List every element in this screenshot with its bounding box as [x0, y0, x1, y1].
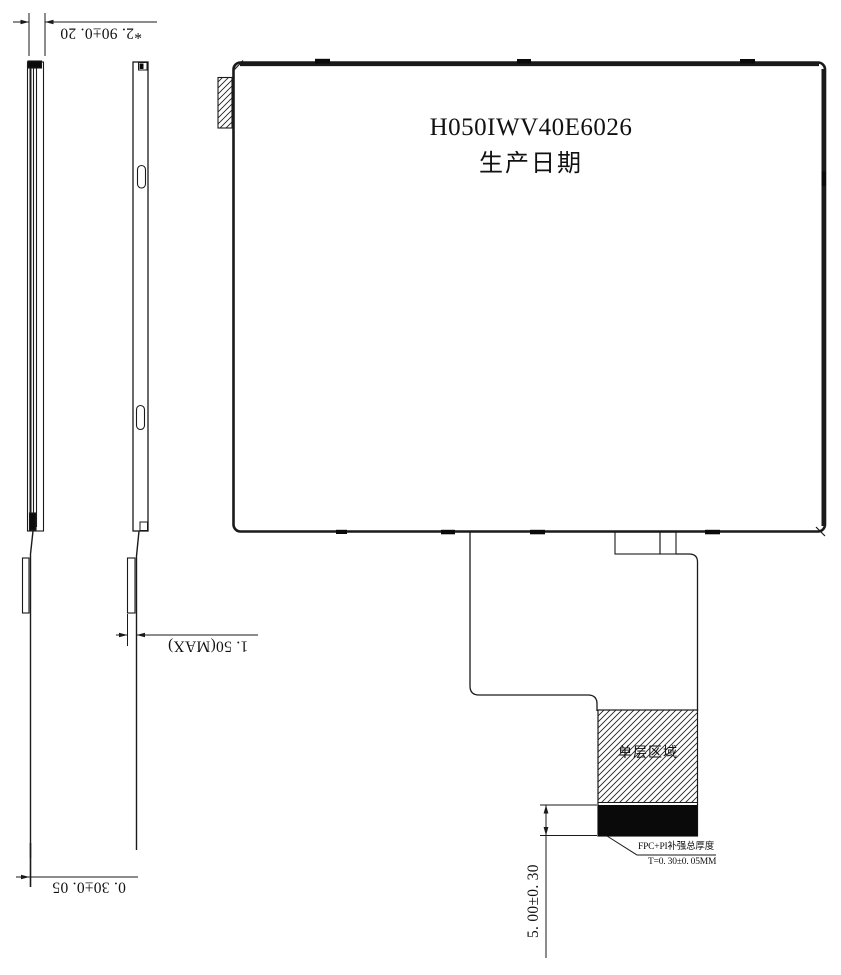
dim-stiffener-max: 1. 50(MAX) [149, 637, 267, 653]
fpc-tail [470, 532, 716, 855]
fpc-note-value: T=0. 30±0. 05MM [648, 858, 716, 868]
engineering-drawing: H050IWV40E6026 生产日期 单层区域 FPC+PI补强总厚度 T=0… [0, 0, 841, 975]
panel-model-text: H050IWV40E6026 [381, 115, 681, 141]
dim-fpc-thickness: 0. 30±0. 05 [38, 878, 140, 894]
production-date-label: 生产日期 [381, 152, 681, 177]
left-profile [23, 61, 44, 858]
fpc-note-title: FPC+PI补强总厚度 [638, 843, 714, 853]
left-edge-hatched-block [218, 78, 232, 129]
right-profile [128, 62, 149, 850]
single-layer-area-label: 单层区域 [598, 747, 698, 762]
drawing-linework [0, 0, 841, 975]
fpc-stiffener-black-block [598, 805, 698, 836]
dim-overall-thickness: *2. 90±0. 20 [44, 24, 158, 40]
dim-tail-length: 5. 00±0. 30 [526, 843, 542, 959]
